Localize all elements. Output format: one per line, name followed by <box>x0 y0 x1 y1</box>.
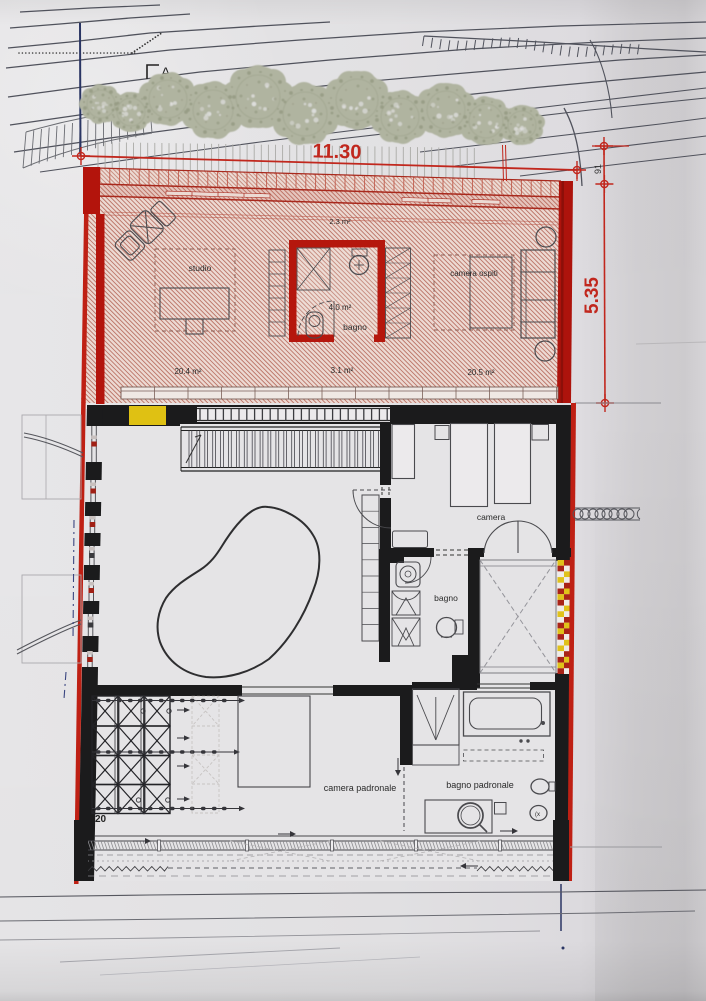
svg-text:studio: studio <box>189 263 212 273</box>
svg-text:3.1 m²: 3.1 m² <box>331 366 354 375</box>
svg-text:(x: (x <box>535 812 540 818</box>
svg-text:camera ospiti: camera ospiti <box>450 269 498 278</box>
svg-text:5.35: 5.35 <box>582 277 603 314</box>
svg-text:2.3 m²: 2.3 m² <box>329 217 351 226</box>
svg-text:11.30: 11.30 <box>312 140 362 163</box>
svg-text:4.0 m²: 4.0 m² <box>329 303 352 312</box>
svg-text:camera: camera <box>477 512 506 522</box>
svg-text:91: 91 <box>593 164 603 174</box>
svg-text:bagno padronale: bagno padronale <box>446 780 514 790</box>
svg-text:20.5 m²: 20.5 m² <box>467 368 494 377</box>
svg-text:bagno: bagno <box>434 593 458 603</box>
svg-text:20.4 m²: 20.4 m² <box>174 367 201 376</box>
svg-text:bagno: bagno <box>343 322 367 332</box>
svg-text:20: 20 <box>95 814 107 825</box>
svg-text:camera padronale: camera padronale <box>324 783 397 793</box>
